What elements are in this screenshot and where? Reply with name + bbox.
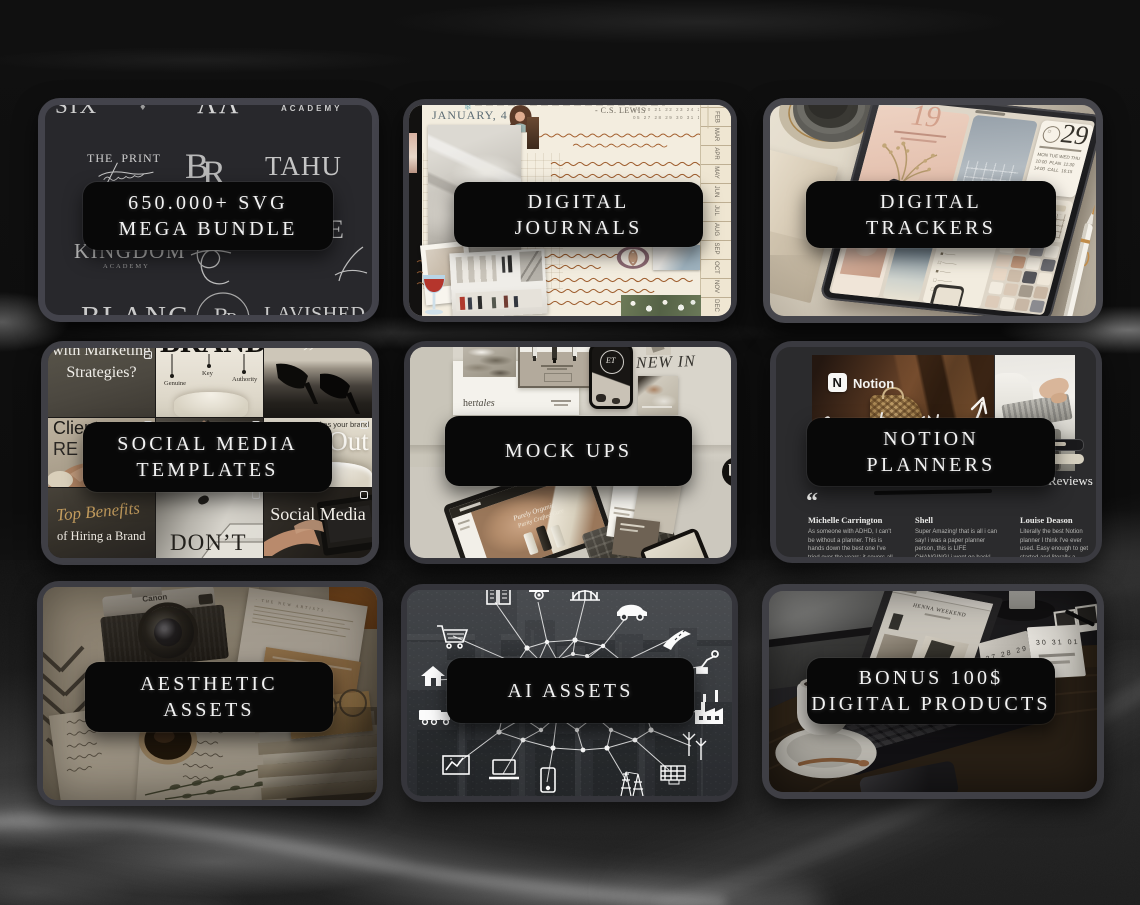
svg-text:R: R xyxy=(226,309,238,315)
